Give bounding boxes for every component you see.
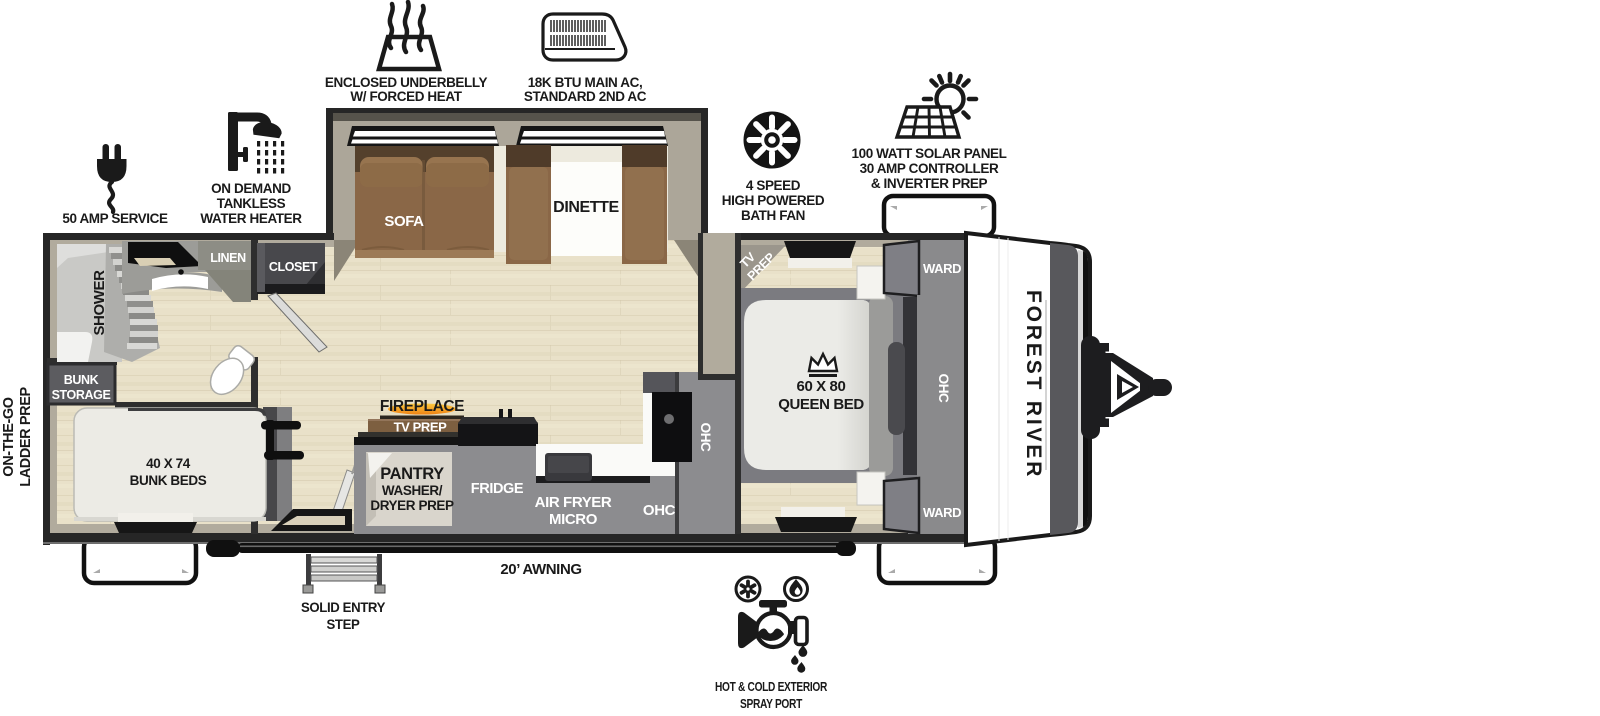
svg-text:40 X 74: 40 X 74: [146, 456, 191, 471]
svg-text:QUEEN BED: QUEEN BED: [778, 396, 864, 413]
svg-text:TANKLESS: TANKLESS: [217, 196, 286, 211]
svg-text:30 AMP CONTROLLER: 30 AMP CONTROLLER: [860, 161, 999, 176]
svg-text:SHOWER: SHOWER: [91, 270, 108, 336]
svg-text:ON DEMAND: ON DEMAND: [211, 181, 291, 196]
svg-text:WARD: WARD: [923, 261, 961, 276]
svg-text:SPRAY PORT: SPRAY PORT: [740, 696, 802, 711]
svg-text:AIR FRYER: AIR FRYER: [535, 494, 612, 511]
svg-text:PANTRY: PANTRY: [380, 465, 444, 483]
svg-text:STEP: STEP: [327, 616, 360, 632]
svg-text:FIREPLACE: FIREPLACE: [380, 398, 464, 415]
svg-text:BUNK: BUNK: [64, 373, 99, 387]
svg-text:STANDARD 2ND AC: STANDARD 2ND AC: [524, 89, 647, 104]
svg-text:50 AMP SERVICE: 50 AMP SERVICE: [62, 211, 168, 226]
svg-text:BUNK BEDS: BUNK BEDS: [130, 473, 207, 488]
svg-text:60 X 80: 60 X 80: [797, 378, 846, 395]
svg-text:WASHER/: WASHER/: [382, 483, 443, 498]
svg-text:OHC: OHC: [643, 502, 676, 519]
svg-text:LADDER PREP: LADDER PREP: [18, 387, 34, 487]
svg-text:DINETTE: DINETTE: [553, 199, 619, 216]
svg-text:TV PREP: TV PREP: [394, 420, 448, 435]
svg-text:STORAGE: STORAGE: [52, 388, 111, 402]
svg-text:& INVERTER PREP: & INVERTER PREP: [871, 176, 988, 191]
svg-text:CLOSET: CLOSET: [269, 260, 318, 274]
svg-text:100 WATT SOLAR PANEL: 100 WATT SOLAR PANEL: [851, 146, 1006, 161]
svg-text:ENCLOSED UNDERBELLY: ENCLOSED UNDERBELLY: [325, 75, 488, 90]
svg-text:WARD: WARD: [923, 505, 961, 520]
svg-text:4 SPEED: 4 SPEED: [746, 178, 801, 193]
svg-text:W/ FORCED HEAT: W/ FORCED HEAT: [350, 89, 462, 104]
svg-text:WATER HEATER: WATER HEATER: [200, 211, 302, 226]
svg-text:HOT & COLD EXTERIOR: HOT & COLD EXTERIOR: [715, 679, 828, 694]
svg-text:20’ AWNING: 20’ AWNING: [500, 561, 581, 578]
svg-text:HIGH POWERED: HIGH POWERED: [722, 193, 825, 208]
svg-text:18K BTU MAIN AC,: 18K BTU MAIN AC,: [528, 75, 643, 90]
svg-text:LINEN: LINEN: [210, 251, 246, 265]
svg-text:MICRO: MICRO: [549, 511, 598, 528]
svg-text:FOREST RIVER: FOREST RIVER: [1022, 290, 1045, 476]
svg-text:OHC: OHC: [698, 423, 713, 452]
svg-text:BATH FAN: BATH FAN: [741, 208, 805, 223]
svg-text:DRYER PREP: DRYER PREP: [370, 498, 454, 513]
svg-text:FRIDGE: FRIDGE: [471, 481, 524, 497]
svg-text:ON-THE-GO: ON-THE-GO: [1, 397, 17, 476]
svg-text:SOLID ENTRY: SOLID ENTRY: [301, 599, 386, 615]
svg-text:OHC: OHC: [936, 374, 951, 403]
svg-text:SOFA: SOFA: [384, 213, 424, 230]
